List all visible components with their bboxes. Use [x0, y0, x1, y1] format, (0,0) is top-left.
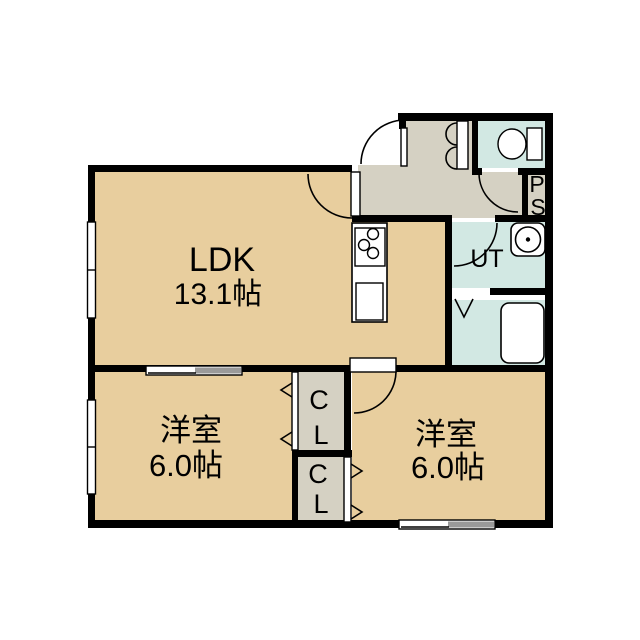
bedroom-left-label: 洋室 [160, 413, 222, 448]
wall-segment [445, 215, 452, 372]
wall-segment [344, 365, 351, 457]
wall-segment [522, 168, 528, 222]
wall-segment [88, 165, 352, 172]
shoe-cabinet-icon [457, 121, 468, 169]
room-hallway [358, 172, 522, 218]
stove-burner-icon [368, 229, 379, 240]
stove-burner-icon [359, 240, 370, 251]
wall-segment [472, 113, 478, 175]
wall-segment [352, 215, 452, 222]
closet-upper-door [292, 372, 298, 450]
bedroom-right-doorway [350, 358, 396, 372]
wall-segment [545, 113, 553, 528]
closet-lower-label-c: C [308, 459, 328, 489]
stove-burner-icon [368, 248, 379, 259]
entrance-door-leaf [401, 128, 407, 166]
bedroom-right-label: 洋室 [415, 417, 477, 452]
hall-ldk-doorway [351, 172, 360, 216]
kitchen-sink-icon [356, 283, 383, 320]
closet-upper-label-c: C [309, 385, 329, 415]
closet-lower-label-l: L [313, 489, 328, 519]
toilet-bowl-icon [498, 129, 526, 159]
wall-segment [490, 288, 553, 295]
bathtub-icon [501, 303, 544, 363]
wall-segment [292, 457, 298, 528]
utility-label: UT [470, 245, 503, 273]
bedroom-right-size-label: 6.0帖 [411, 450, 485, 485]
pipe-shaft-label-s: S [530, 194, 545, 220]
floorplan-drawing: LDK 13.1帖 洋室 6.0帖 洋室 6.0帖 UT P S C L C L [0, 0, 640, 640]
sliding-door-panel [195, 368, 241, 374]
closet-upper-label-l: L [313, 420, 328, 450]
wall-segment [472, 168, 482, 175]
floorplan: LDK 13.1帖 洋室 6.0帖 洋室 6.0帖 UT P S C L C L [0, 0, 640, 640]
entry-doorway-floor [358, 165, 403, 173]
ldk-label: LDK [189, 241, 255, 279]
bedroom-left-size-label: 6.0帖 [149, 448, 223, 483]
closet-lower-door [344, 457, 351, 522]
window-panel [448, 522, 494, 528]
washing-machine-dot [526, 237, 530, 241]
toilet-tank-icon [527, 128, 542, 160]
wall-segment [292, 450, 352, 457]
ldk-size-label: 13.1帖 [174, 278, 262, 311]
